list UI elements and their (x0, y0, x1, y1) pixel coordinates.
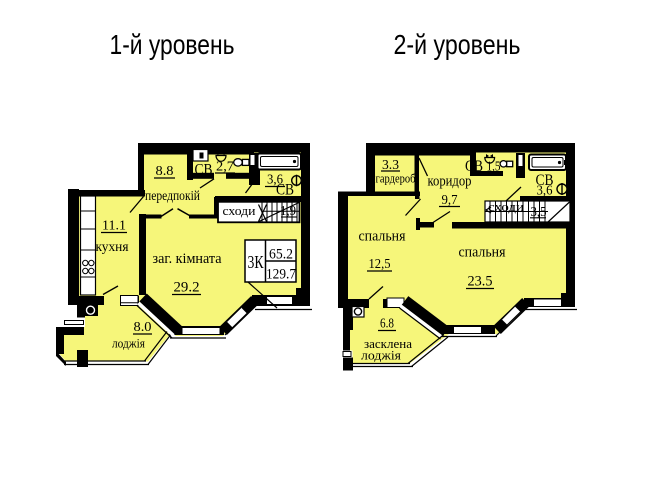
svg-text:СВ: СВ (276, 182, 294, 199)
svg-text:кухня: кухня (96, 240, 130, 255)
svg-text:9,7: 9,7 (442, 193, 458, 208)
svg-text:лоджія: лоджія (361, 348, 401, 363)
svg-text:65.2: 65.2 (269, 247, 293, 263)
svg-text:1-й уровень: 1-й уровень (110, 29, 235, 60)
svg-text:3,6: 3,6 (537, 184, 553, 199)
svg-text:11.1: 11.1 (102, 219, 126, 234)
svg-text:заг. кімната: заг. кімната (153, 251, 222, 267)
svg-text:6.8: 6.8 (380, 317, 394, 332)
svg-text:1,5: 1,5 (487, 160, 501, 175)
svg-text:сходи: сходи (488, 200, 524, 214)
svg-text:3К: 3К (248, 252, 265, 272)
svg-text:129.7: 129.7 (266, 267, 296, 283)
svg-text:2-й уровень: 2-й уровень (394, 29, 521, 60)
svg-text:лоджія: лоджія (112, 336, 145, 351)
svg-text:сходи: сходи (223, 203, 256, 218)
svg-text:8.0: 8.0 (134, 320, 152, 335)
svg-text:коридор: коридор (428, 174, 472, 190)
svg-text:СВ: СВ (465, 158, 483, 175)
svg-text:23.5: 23.5 (468, 274, 493, 290)
svg-text:спальня: спальня (359, 229, 406, 245)
svg-text:СВ: СВ (195, 162, 213, 179)
svg-text:12,5: 12,5 (369, 257, 391, 272)
svg-text:8.8: 8.8 (156, 164, 174, 179)
svg-text:29.2: 29.2 (174, 280, 200, 296)
svg-text:гардероб: гардероб (376, 172, 416, 186)
svg-text:спальня: спальня (459, 245, 506, 261)
svg-text:передпокій: передпокій (145, 189, 200, 204)
svg-text:2,7: 2,7 (216, 160, 234, 175)
